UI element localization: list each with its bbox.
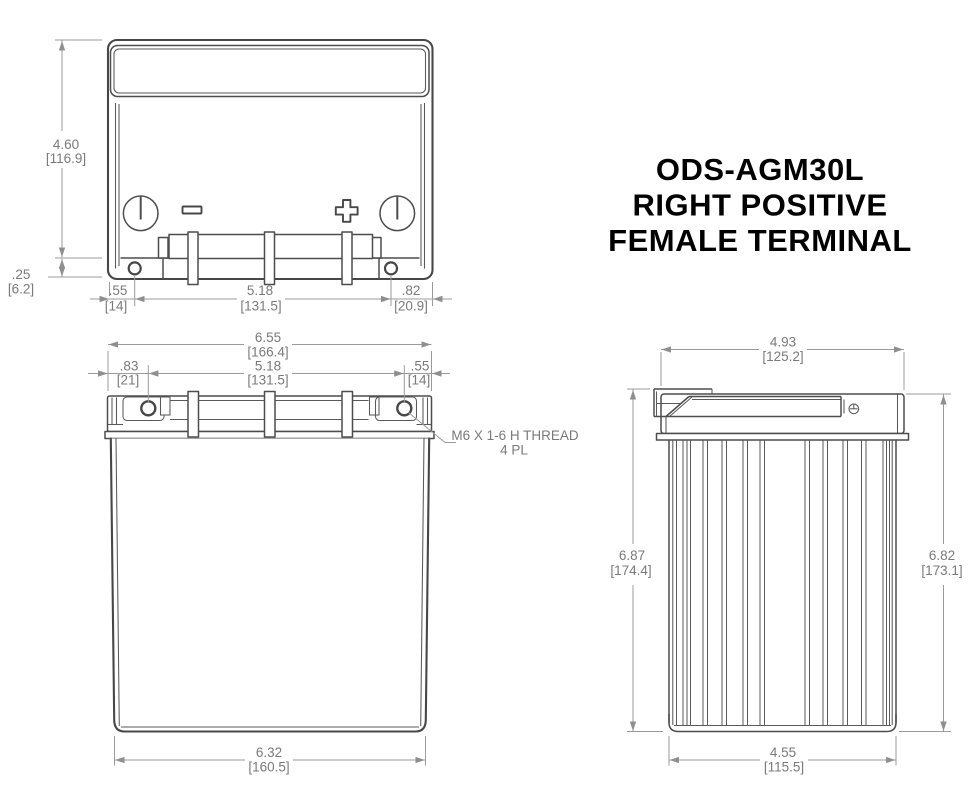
- dim-height-left-in: 6.87: [619, 548, 645, 563]
- dim-hole-right-mm: [20.9]: [394, 299, 428, 314]
- dim-height-mm: [116.9]: [46, 151, 86, 166]
- thread-note-line1: M6 X 1-6 H THREAD: [451, 428, 579, 443]
- dim-terminal-right-mm: [14]: [408, 373, 431, 388]
- thread-note-line2: 4 PL: [500, 443, 528, 458]
- dim-side-width-in: 4.93: [770, 335, 796, 350]
- dim-height-right-in: 6.82: [929, 548, 955, 563]
- front-view: 6.55 [166.4] .83 [21] 5.18 [131.5] .55 […: [88, 330, 579, 775]
- front-rib-2: [265, 392, 276, 438]
- dim-height-in: 4.60: [53, 137, 79, 152]
- rib-2: [265, 232, 275, 285]
- dim-height-left-mm: [174.4]: [610, 563, 651, 578]
- dim-height-right-mm: [173.1]: [921, 563, 962, 578]
- dim-flange-mm: [6.2]: [8, 282, 34, 297]
- dim-flange-in: .25: [12, 267, 31, 282]
- dim-front-base-mm: [160.5]: [248, 760, 289, 775]
- dim-terminal-left-in: .83: [120, 359, 139, 374]
- dim-side-base-mm: [115.5]: [764, 760, 804, 775]
- rib-3: [342, 232, 352, 285]
- mounting-hole-right: [385, 262, 397, 274]
- dim-terminal-spacing-mm: [131.5]: [247, 373, 288, 388]
- dim-side-height-right: 6.82 [173.1]: [899, 394, 963, 732]
- dim-front-base: 6.32 [160.5]: [115, 736, 426, 775]
- battery-body-front: [111, 439, 429, 732]
- dim-side-width: 4.93 [125.2]: [661, 335, 904, 391]
- dim-side-height-left: 6.87 [174.4]: [610, 389, 663, 732]
- dim-hole-right-in: .82: [402, 283, 421, 298]
- side-view: 4.93 [125.2] 6.87 [174.4] 6.82 [173.1]: [610, 335, 962, 775]
- dim-terminal-spacing-in: 5.18: [255, 359, 281, 374]
- negative-symbol-icon: [183, 207, 202, 214]
- front-rib-3: [342, 392, 353, 438]
- title-model: ODS-AGM30L: [656, 152, 864, 187]
- dim-top-height: 4.60 [116.9] .25 [6.2]: [8, 40, 102, 297]
- positive-terminal: [380, 196, 415, 231]
- dim-hole-spacing-in: 5.18: [247, 283, 273, 298]
- title-block: ODS-AGM30L RIGHT POSITIVE FEMALE TERMINA…: [608, 152, 912, 258]
- vent-plug-icon: [849, 404, 859, 414]
- dim-side-width-mm: [125.2]: [762, 349, 803, 364]
- dim-front-width-in: 6.55: [255, 330, 281, 345]
- drawing-sheet: 4.60 [116.9] .25 [6.2] .55 [14] 5.18 [13…: [0, 0, 974, 811]
- cap-band-side: [657, 434, 909, 441]
- battery-drawing: 4.60 [116.9] .25 [6.2] .55 [14] 5.18 [13…: [0, 0, 974, 811]
- dim-terminal-left-mm: [21]: [117, 373, 140, 388]
- rib-1: [188, 232, 198, 285]
- mounting-hole-left: [129, 262, 141, 274]
- title-terminal: FEMALE TERMINAL: [608, 223, 912, 258]
- dim-front-base-in: 6.32: [256, 745, 282, 760]
- dim-front-width-mm: [166.4]: [247, 345, 288, 360]
- dim-hole-spacing-mm: [131.5]: [240, 299, 281, 314]
- dim-side-base: 4.55 [115.5]: [669, 736, 896, 775]
- dim-hole-left-mm: [14]: [105, 299, 128, 314]
- dim-side-base-in: 4.55: [770, 745, 796, 760]
- title-polarity: RIGHT POSITIVE: [632, 188, 887, 223]
- terminal-hole-left: [141, 401, 155, 415]
- dim-terminal-right-in: .55: [411, 359, 430, 374]
- side-ribs: [677, 441, 890, 726]
- dim-hole-left-in: .55: [109, 283, 128, 298]
- front-rib-1: [188, 392, 199, 438]
- flange-tab-left: [159, 238, 169, 259]
- negative-terminal: [123, 196, 158, 231]
- top-view: 4.60 [116.9] .25 [6.2] .55 [14] 5.18 [13…: [8, 40, 452, 314]
